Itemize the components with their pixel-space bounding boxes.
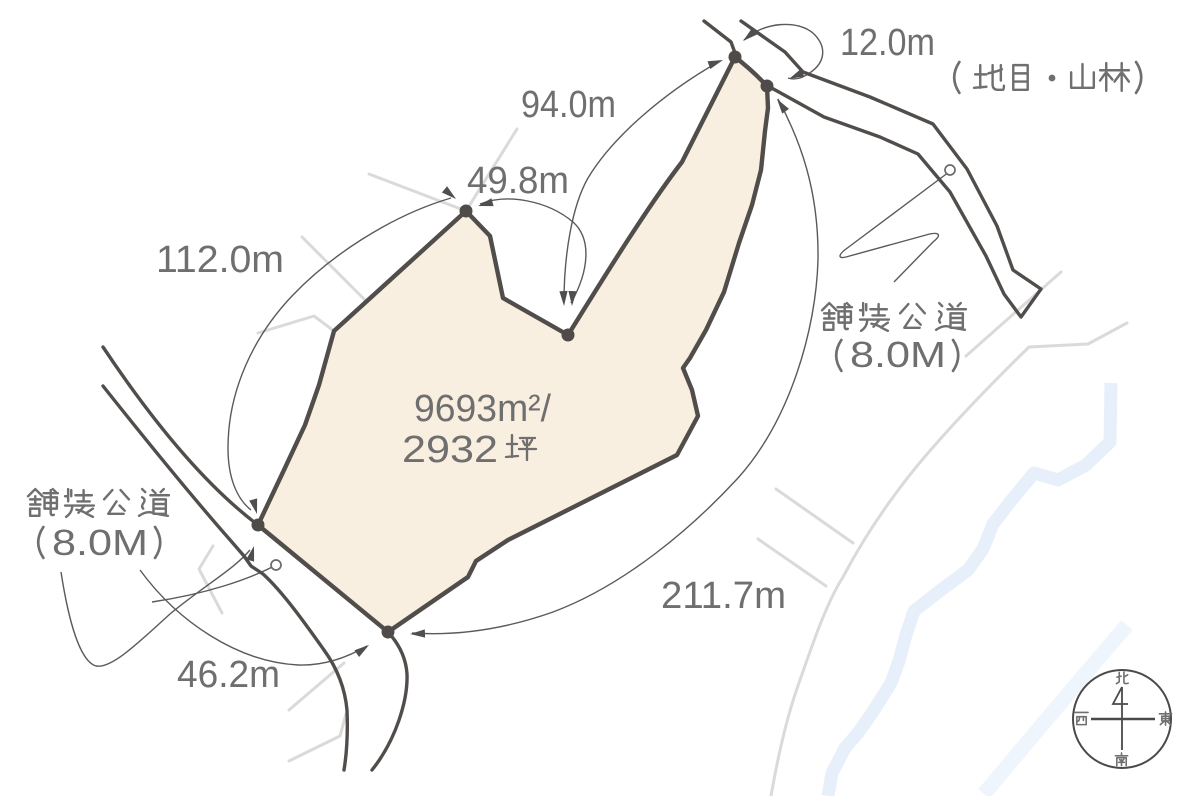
svg-text:8.0M: 8.0M	[850, 334, 946, 375]
svg-text:9693m²/: 9693m²/	[414, 388, 551, 430]
svg-text:94.0m: 94.0m	[521, 84, 616, 126]
svg-text:49.8m: 49.8m	[467, 160, 569, 202]
svg-text:211.7m: 211.7m	[661, 575, 786, 617]
svg-text:8.0M: 8.0M	[52, 522, 148, 563]
svg-text:12.0m: 12.0m	[840, 22, 935, 64]
svg-text:46.2m: 46.2m	[177, 654, 280, 696]
svg-text:112.0m: 112.0m	[156, 239, 284, 281]
svg-text:2932: 2932	[402, 429, 498, 471]
